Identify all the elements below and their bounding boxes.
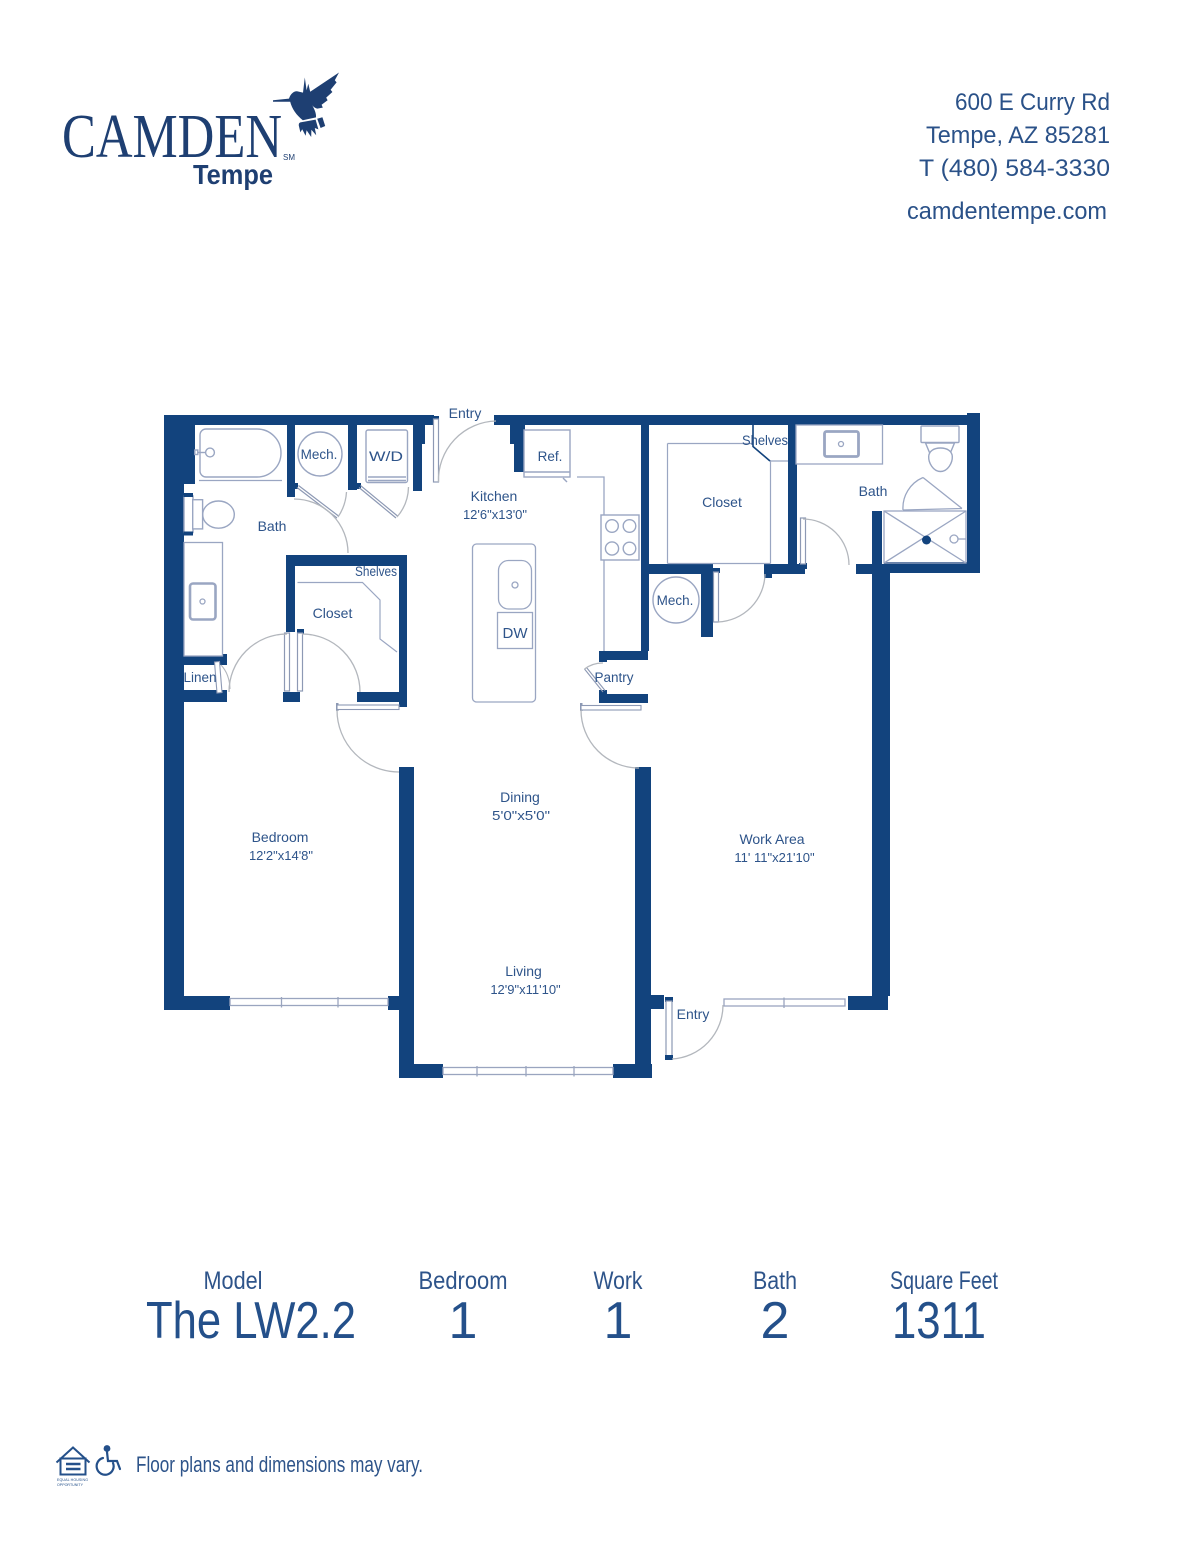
svg-text:camdentempe.com: camdentempe.com	[907, 198, 1107, 225]
svg-text:Work Area: Work Area	[739, 831, 804, 847]
svg-text:5'0"x5'0": 5'0"x5'0"	[492, 808, 550, 823]
svg-text:12'2"x14'8": 12'2"x14'8"	[249, 848, 313, 863]
svg-text:Entry: Entry	[449, 405, 482, 421]
svg-text:W/D: W/D	[369, 449, 403, 464]
svg-text:DW: DW	[503, 625, 529, 642]
svg-text:11' 11"x21'10": 11' 11"x21'10"	[734, 850, 815, 865]
svg-text:Work: Work	[594, 1267, 643, 1295]
svg-text:Entry: Entry	[677, 1006, 710, 1022]
svg-text:Square Feet: Square Feet	[890, 1267, 998, 1295]
svg-text:Pantry: Pantry	[594, 670, 633, 685]
svg-text:T (480) 584-3330: T (480) 584-3330	[919, 155, 1110, 182]
svg-text:Shelves: Shelves	[355, 564, 397, 579]
svg-text:Kitchen: Kitchen	[471, 488, 518, 504]
svg-text:1311: 1311	[892, 1292, 986, 1350]
svg-text:Closet: Closet	[313, 605, 353, 621]
svg-text:Tempe, AZ 85281: Tempe, AZ 85281	[926, 122, 1110, 149]
svg-text:Bath: Bath	[859, 483, 888, 499]
svg-text:1: 1	[604, 1292, 633, 1350]
svg-text:Mech.: Mech.	[301, 447, 338, 462]
svg-text:Tempe: Tempe	[193, 159, 273, 190]
svg-text:The LW2.2: The LW2.2	[146, 1292, 356, 1350]
svg-text:2: 2	[761, 1292, 790, 1350]
svg-text:Model: Model	[204, 1267, 263, 1295]
svg-text:Bath: Bath	[258, 518, 287, 534]
svg-text:Dining: Dining	[500, 789, 540, 805]
svg-text:Bedroom: Bedroom	[419, 1267, 508, 1295]
svg-text:Mech.: Mech.	[657, 593, 694, 608]
svg-text:Bath: Bath	[753, 1267, 797, 1295]
svg-text:SM: SM	[283, 153, 295, 162]
svg-text:Bedroom: Bedroom	[252, 829, 309, 845]
svg-text:12'9"x11'10": 12'9"x11'10"	[490, 982, 561, 997]
svg-text:Living: Living	[505, 963, 542, 979]
svg-text:EQUAL HOUSING: EQUAL HOUSING	[57, 1478, 88, 1482]
svg-text:Closet: Closet	[702, 494, 742, 510]
svg-text:600 E Curry Rd: 600 E Curry Rd	[955, 89, 1110, 116]
svg-text:OPPORTUNITY: OPPORTUNITY	[57, 1483, 84, 1487]
svg-text:Floor plans and dimensions may: Floor plans and dimensions may vary.	[136, 1452, 423, 1477]
svg-text:Linen: Linen	[183, 670, 216, 685]
svg-text:Shelves: Shelves	[742, 433, 788, 448]
svg-text:1: 1	[449, 1292, 478, 1350]
svg-text:Ref.: Ref.	[538, 449, 563, 464]
svg-text:12'6"x13'0": 12'6"x13'0"	[463, 507, 527, 522]
